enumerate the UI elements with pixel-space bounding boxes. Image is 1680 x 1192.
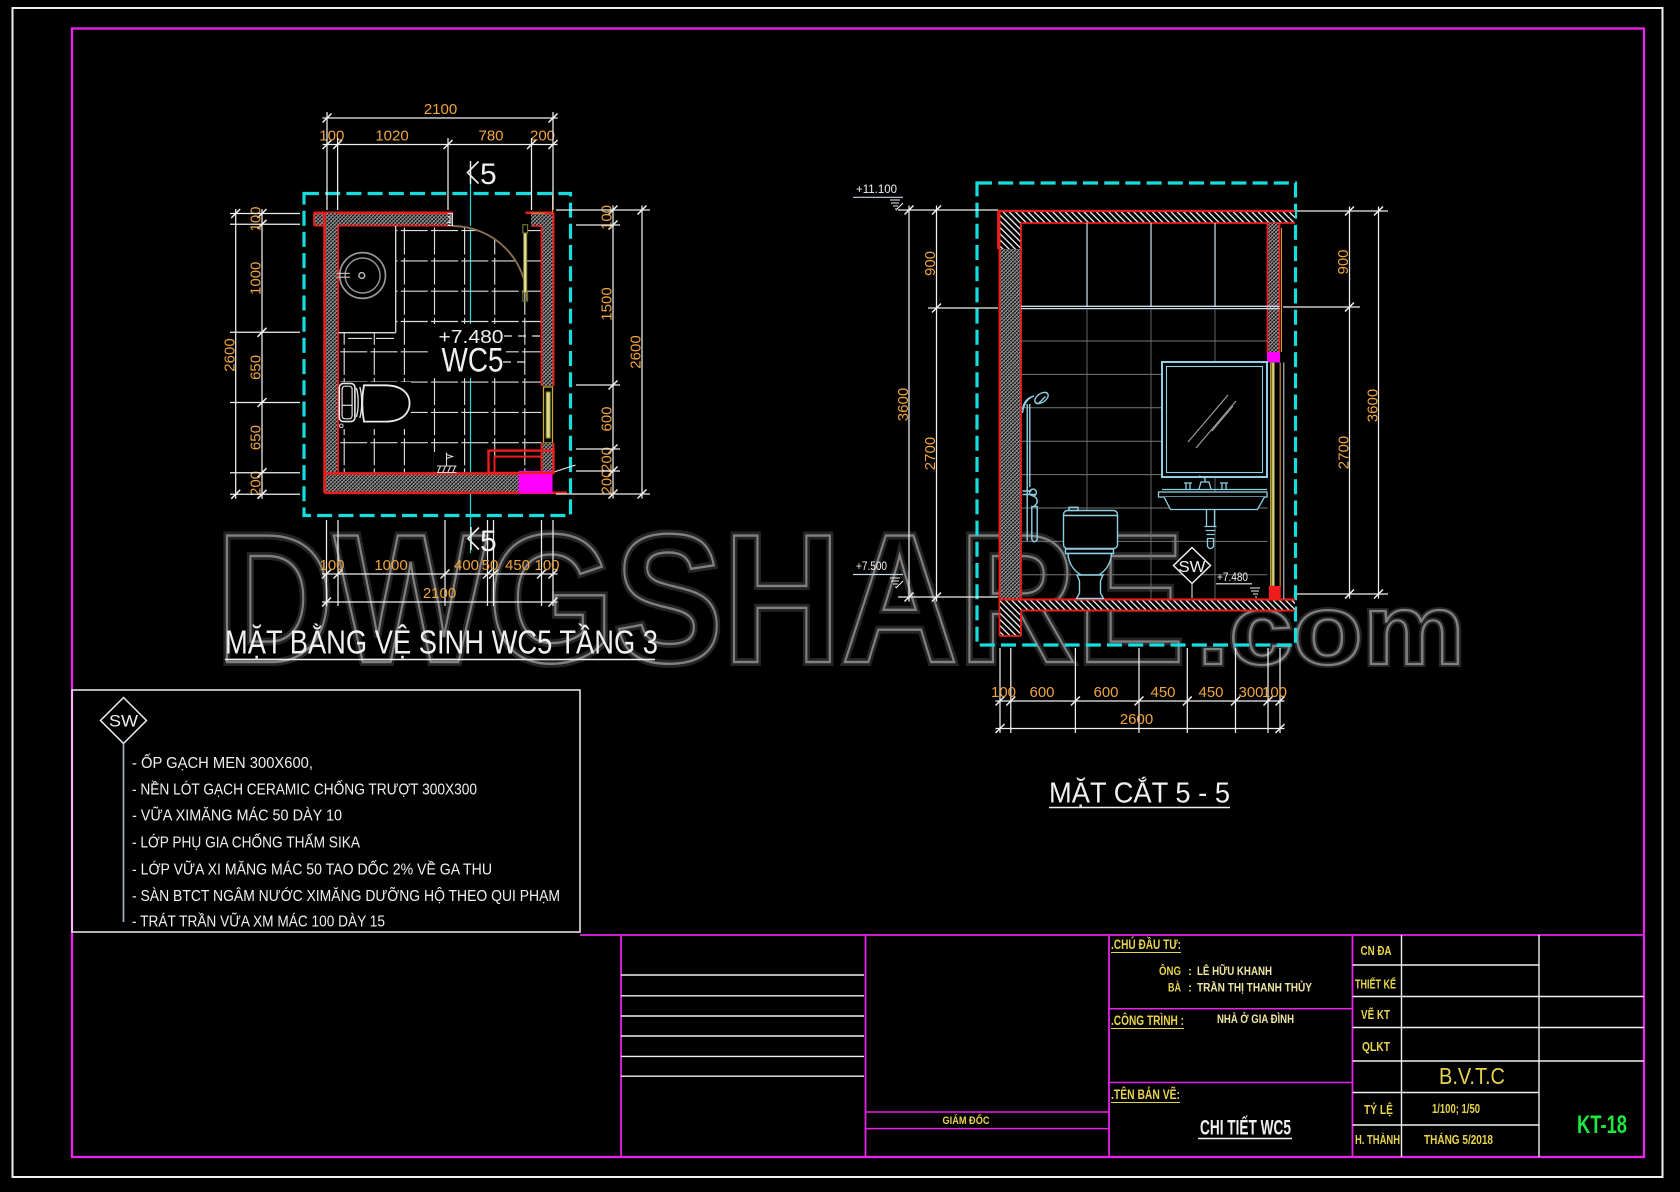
svg-text:CHI TIẾT WC5: CHI TIẾT WC5 <box>1200 1115 1291 1140</box>
svg-text:1500: 1500 <box>598 287 615 320</box>
svg-text:5: 5 <box>480 158 497 191</box>
svg-text:400: 400 <box>454 557 479 574</box>
svg-text::: : <box>1188 981 1192 995</box>
svg-text:100: 100 <box>1262 684 1287 701</box>
svg-text:2100: 2100 <box>424 101 457 118</box>
svg-text:200: 200 <box>247 471 264 496</box>
svg-text:1000: 1000 <box>247 262 264 295</box>
svg-text:2600: 2600 <box>221 338 238 371</box>
svg-text:100: 100 <box>319 557 344 574</box>
svg-text:2600: 2600 <box>627 335 644 368</box>
svg-text:450: 450 <box>505 557 530 574</box>
svg-text:SW: SW <box>109 713 138 731</box>
svg-text:100: 100 <box>598 205 615 230</box>
svg-text:1020: 1020 <box>375 128 408 145</box>
svg-text:- LỚP PHỤ GIA CHỐNG THẤM SIKA: - LỚP PHỤ GIA CHỐNG THẤM SIKA <box>132 832 360 852</box>
svg-text:.CÔNG TRÌNH :: .CÔNG TRÌNH : <box>1111 1013 1184 1028</box>
svg-text:200: 200 <box>598 469 615 494</box>
svg-text:2700: 2700 <box>922 437 939 470</box>
svg-text:650: 650 <box>247 425 264 450</box>
svg-text:- TRÁT TRẦN VỮA XM MÁC 100 DÀY: - TRÁT TRẦN VỮA XM MÁC 100 DÀY 15 <box>132 911 385 931</box>
svg-text:2700: 2700 <box>1335 436 1352 469</box>
svg-text:450: 450 <box>1198 684 1223 701</box>
svg-text:100: 100 <box>991 684 1016 701</box>
svg-text:GIÁM ĐỐC: GIÁM ĐỐC <box>943 1113 990 1127</box>
svg-text::: : <box>1188 964 1192 978</box>
svg-text:780: 780 <box>478 128 503 145</box>
svg-text:100: 100 <box>247 206 264 231</box>
svg-text:TRẦN THỊ THANH THỦY: TRẦN THỊ THANH THỦY <box>1197 980 1312 995</box>
svg-text:SW: SW <box>1179 559 1206 576</box>
svg-text:+7.480: +7.480 <box>1217 570 1248 584</box>
svg-text:MẶT CẮT 5 - 5: MẶT CẮT 5 - 5 <box>1049 778 1230 810</box>
svg-text:- VỮA XIMĂNG MÁC 50 DÀY 10: - VỮA XIMĂNG MÁC 50 DÀY 10 <box>132 805 342 825</box>
svg-text:VẼ KT: VẼ KT <box>1361 1007 1390 1022</box>
svg-text:900: 900 <box>922 251 939 276</box>
svg-text:450: 450 <box>1150 684 1175 701</box>
svg-text:200: 200 <box>598 447 615 472</box>
svg-text:THIẾT KẾ: THIẾT KẾ <box>1355 977 1396 992</box>
svg-text:KT-18: KT-18 <box>1577 1111 1627 1139</box>
svg-text:WC5: WC5 <box>442 342 504 380</box>
svg-text:600: 600 <box>1029 684 1054 701</box>
svg-text:THÁNG 5/2018: THÁNG 5/2018 <box>1424 1132 1493 1147</box>
svg-text:3600: 3600 <box>1364 389 1381 422</box>
svg-text:3600: 3600 <box>895 388 912 421</box>
svg-text:900: 900 <box>1335 249 1352 274</box>
svg-text:.TÊN BẢN VẼ:: .TÊN BẢN VẼ: <box>1111 1087 1180 1102</box>
svg-text:- LỚP VỮA XI MĂNG MÁC 50 TAO D: - LỚP VỮA XI MĂNG MÁC 50 TAO DỐC 2% VỀ G… <box>132 859 492 879</box>
svg-text:MẶT BẰNG VỆ SINH WC5 TẦNG 3: MẶT BẰNG VỆ SINH WC5 TẦNG 3 <box>225 624 658 661</box>
svg-text:600: 600 <box>1093 684 1118 701</box>
svg-text:200: 200 <box>530 128 555 145</box>
svg-text:B.V.T.C: B.V.T.C <box>1439 1063 1505 1089</box>
svg-text:BÀ: BÀ <box>1168 980 1181 995</box>
svg-text:300: 300 <box>1238 684 1263 701</box>
svg-text:.CHÚ ĐẦU TƯ:: .CHÚ ĐẦU TƯ: <box>1111 937 1181 952</box>
svg-text:+7.500: +7.500 <box>856 559 887 573</box>
svg-text:2100: 2100 <box>423 585 456 602</box>
svg-text:600: 600 <box>598 406 615 431</box>
svg-text:1/100; 1/50: 1/100; 1/50 <box>1432 1102 1480 1116</box>
svg-text:+11.100: +11.100 <box>856 182 897 196</box>
svg-text:- ỐP GẠCH MEN 300X600,: - ỐP GẠCH MEN 300X600, <box>132 752 313 772</box>
svg-text:QLKT: QLKT <box>1362 1040 1390 1054</box>
svg-text:- NỀN LÓT GẠCH CERAMIC CHỐNG T: - NỀN LÓT GẠCH CERAMIC CHỐNG TRƯỢT 300X3… <box>132 779 477 799</box>
svg-text:100: 100 <box>534 557 559 574</box>
svg-text:100: 100 <box>319 128 344 145</box>
svg-text:1000: 1000 <box>374 557 407 574</box>
svg-text:CN ĐA: CN ĐA <box>1361 944 1392 958</box>
svg-text:5: 5 <box>480 525 497 558</box>
svg-text:NHÀ Ở GIA ĐÌNH: NHÀ Ở GIA ĐÌNH <box>1217 1011 1294 1026</box>
svg-text:- SÀN BTCT NGÂM NƯỚC XIMĂNG DƯ: - SÀN BTCT NGÂM NƯỚC XIMĂNG DƯỠNG HỘ THE… <box>132 885 560 905</box>
svg-text:ÔNG: ÔNG <box>1159 963 1181 978</box>
svg-text:.com: .com <box>1197 574 1465 686</box>
svg-text:LÊ HỮU KHANH: LÊ HỮU KHANH <box>1197 963 1272 978</box>
svg-text:H. THÀNH: H. THÀNH <box>1355 1132 1400 1147</box>
svg-text:2600: 2600 <box>1120 711 1153 728</box>
svg-text:50: 50 <box>482 557 499 574</box>
svg-text:650: 650 <box>247 355 264 380</box>
svg-text:TỶ LỆ: TỶ LỆ <box>1364 1102 1393 1117</box>
